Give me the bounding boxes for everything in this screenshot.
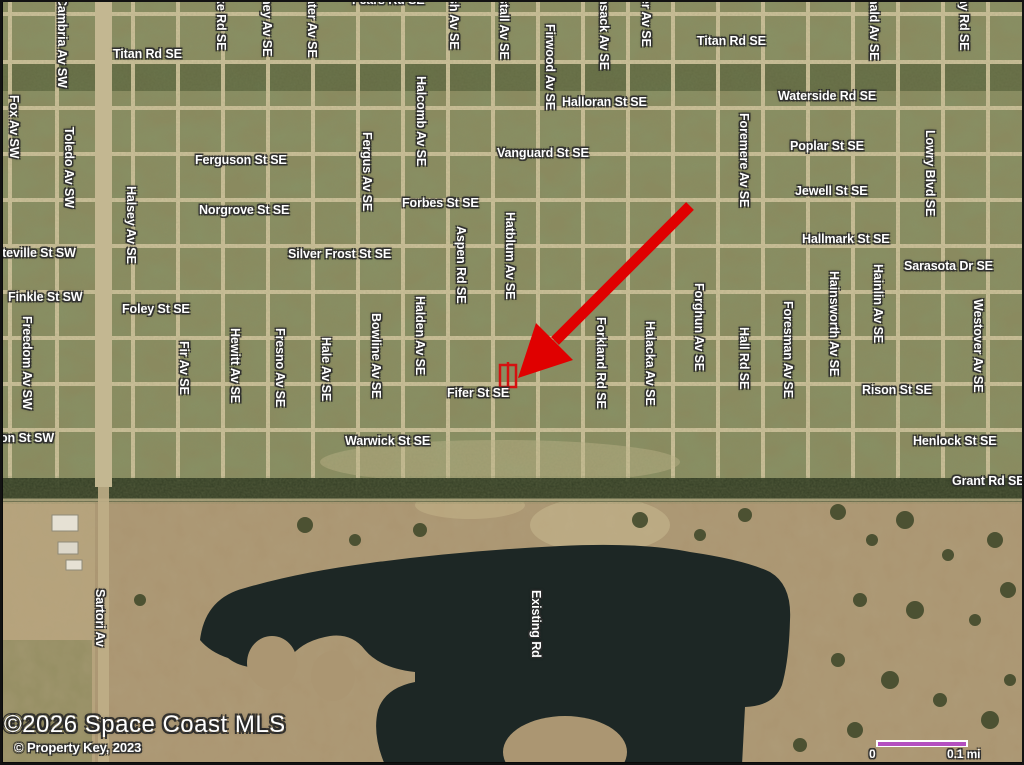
- street-label: Firwood Av SE: [543, 24, 557, 110]
- street-label: Foresman Av SE: [781, 301, 795, 398]
- street-label: Hall Rd SE: [737, 327, 751, 389]
- attribution-property-key: © Property Key, 2023: [14, 741, 141, 755]
- street-label: Silver Frost St SE: [288, 247, 391, 261]
- scale-end-label: 0.1 mi: [947, 747, 980, 761]
- street-label: Sartori Av: [93, 589, 107, 647]
- street-label: Vanguard St SE: [497, 146, 589, 160]
- street-label: Titan Rd SE: [113, 47, 182, 61]
- street-label: Hainlin Av SE: [871, 264, 885, 343]
- street-label: er Av SE: [639, 0, 653, 47]
- street-label: sh Av SE: [447, 0, 461, 49]
- street-label: Sarasota Dr SE: [904, 259, 993, 273]
- hedge-row: [0, 476, 1024, 504]
- street-label: Fresno Av SE: [273, 328, 287, 407]
- street-label: Forbes St SE: [402, 196, 479, 210]
- street-label: Fears Rd SE: [352, 0, 425, 7]
- street-label: Waterside Rd SE: [778, 89, 876, 103]
- street-label: Freedom Av SW: [20, 316, 34, 410]
- street-label: Rison St SE: [862, 383, 932, 397]
- street-label: Cambria Av SW: [55, 0, 69, 88]
- street-label: Finkle St SW: [8, 290, 83, 304]
- street-label: Hatblum Av SE: [503, 212, 517, 299]
- street-label: Lowry Blvd SE: [923, 130, 937, 216]
- street-label: Foremere Av SE: [737, 113, 751, 207]
- street-label: Forkland Rd SE: [594, 317, 608, 409]
- street-label: Fergus Av SE: [360, 132, 374, 211]
- street-label: stall Av SE: [497, 0, 511, 60]
- street-label: tteville St SW: [0, 246, 76, 260]
- street-label: Grant Rd SE: [952, 474, 1024, 488]
- street-label: Fifer St SE: [447, 386, 509, 400]
- street-label: nsack Av SE: [597, 0, 611, 70]
- street-label: ater Av SE: [305, 0, 319, 58]
- street-label: Ferguson St SE: [195, 153, 287, 167]
- street-label: Toledo Av SW: [62, 127, 76, 208]
- street-label: Forghun Av SE: [692, 283, 706, 371]
- street-label: Halden Av SE: [413, 296, 427, 375]
- street-label: ney Av SE: [260, 0, 274, 56]
- aerial-map: Titan Rd SEFears Rd SETitan Rd SEWatersi…: [0, 0, 1024, 765]
- street-label: Warwick St SE: [345, 434, 430, 448]
- street-label: Fox Av SW: [7, 95, 21, 158]
- street-label: Henlock St SE: [913, 434, 996, 448]
- street-label: Existing Rd: [529, 590, 543, 658]
- street-label: Halsey Av SE: [124, 186, 138, 264]
- street-label: Hainsworth Av SE: [827, 271, 841, 376]
- street-label: Halcomb Av SE: [414, 76, 428, 166]
- street-label: Titan Rd SE: [697, 34, 766, 48]
- street-label: Westover Av SE: [971, 299, 985, 392]
- street-label: Jewell St SE: [795, 184, 867, 198]
- street-label: ke Rd SE: [214, 0, 228, 50]
- scale-bar: [876, 740, 968, 747]
- street-label: Halacka Av SE: [643, 321, 657, 406]
- street-label: Hale Av SE: [319, 337, 333, 401]
- street-label: Foley St SE: [122, 302, 190, 316]
- lake-island: [247, 636, 297, 690]
- lake-island: [311, 651, 355, 701]
- street-label: Fir Av SE: [177, 341, 191, 395]
- street-label: Hewitt Av SE: [228, 328, 242, 403]
- street-label: ay Rd SE: [957, 0, 971, 50]
- street-label: Aspen Rd SE: [454, 226, 468, 303]
- street-label: Bowline Av SE: [369, 313, 383, 398]
- street-label: nald Av SE: [867, 0, 881, 60]
- scale-start-label: 0: [869, 747, 876, 761]
- street-label: Poplar St SE: [790, 139, 864, 153]
- street-label: Norgrove St SE: [199, 203, 289, 217]
- street-label: Halloran St SE: [562, 95, 647, 109]
- street-label: Hallmark St SE: [802, 232, 890, 246]
- attribution-mls: ©2026 Space Coast MLS: [4, 712, 286, 738]
- street-label: on St SW: [0, 431, 54, 445]
